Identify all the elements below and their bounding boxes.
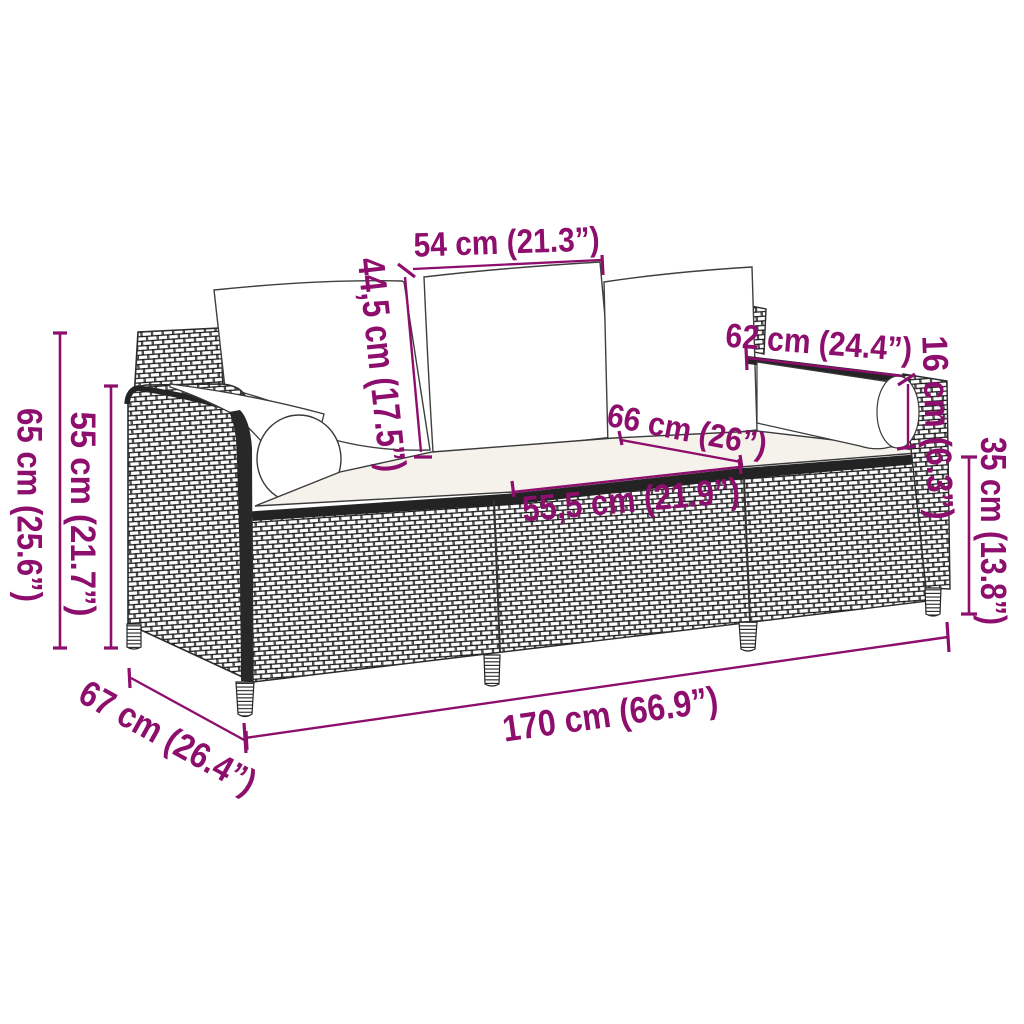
svg-text:35 cm (13.8”): 35 cm (13.8”) [973,437,1014,625]
svg-text:55 cm (21.7”): 55 cm (21.7”) [63,412,102,617]
svg-text:54 cm (21.3”): 54 cm (21.3”) [413,220,600,264]
svg-text:16 cm (6.3”): 16 cm (6.3”) [914,335,961,520]
svg-text:65 cm (25.6”): 65 cm (25.6”) [10,408,49,602]
